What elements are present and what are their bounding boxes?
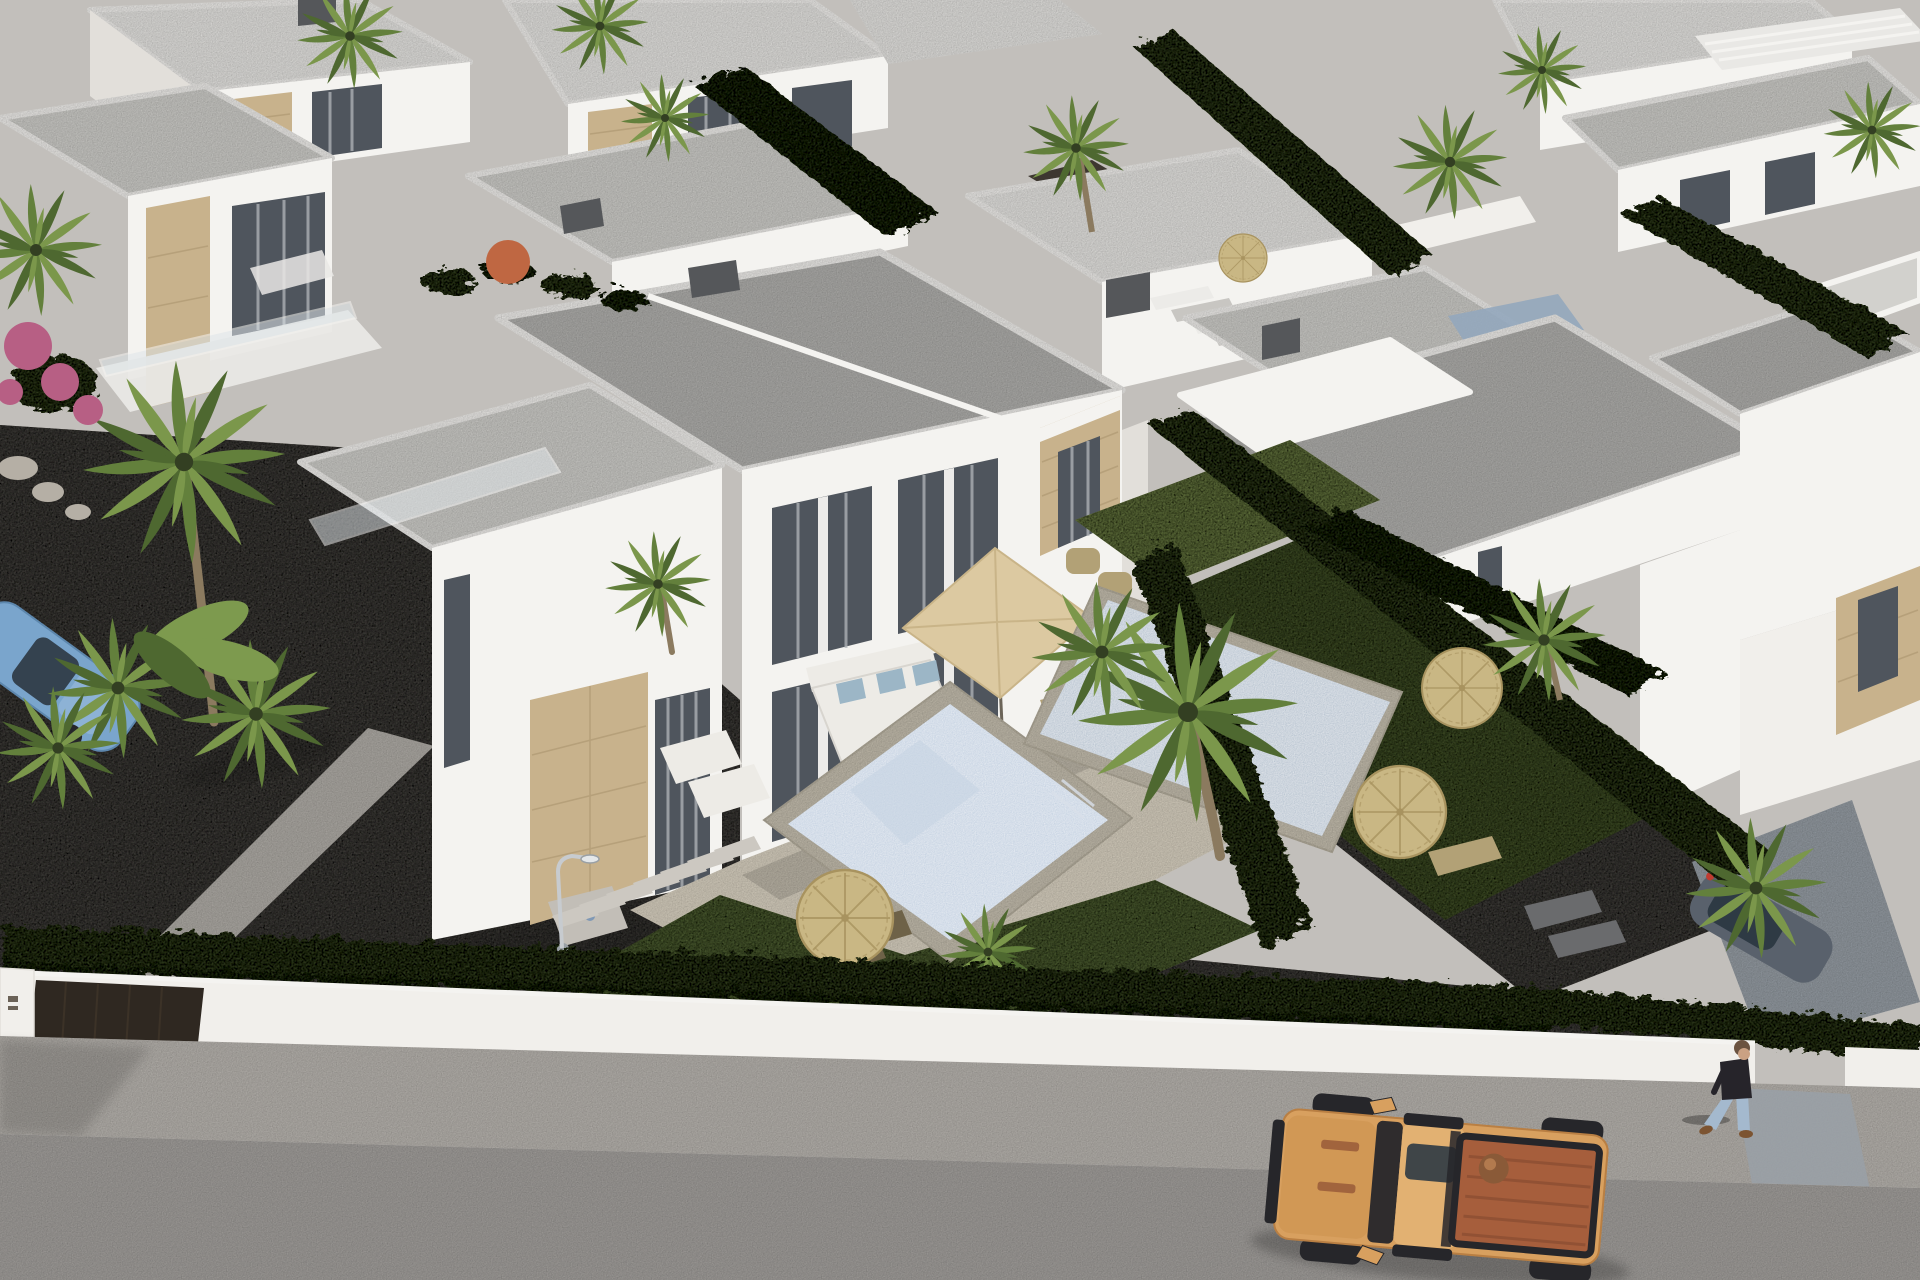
truck-hood bbox=[1277, 1114, 1377, 1239]
wicker-chair bbox=[1066, 548, 1100, 574]
villa-development-render bbox=[0, 0, 1920, 1280]
orange-parasol bbox=[486, 240, 530, 284]
scene-canvas bbox=[0, 0, 1920, 1280]
entrance-post bbox=[0, 968, 34, 1042]
driveway-apron bbox=[1735, 1088, 1870, 1190]
